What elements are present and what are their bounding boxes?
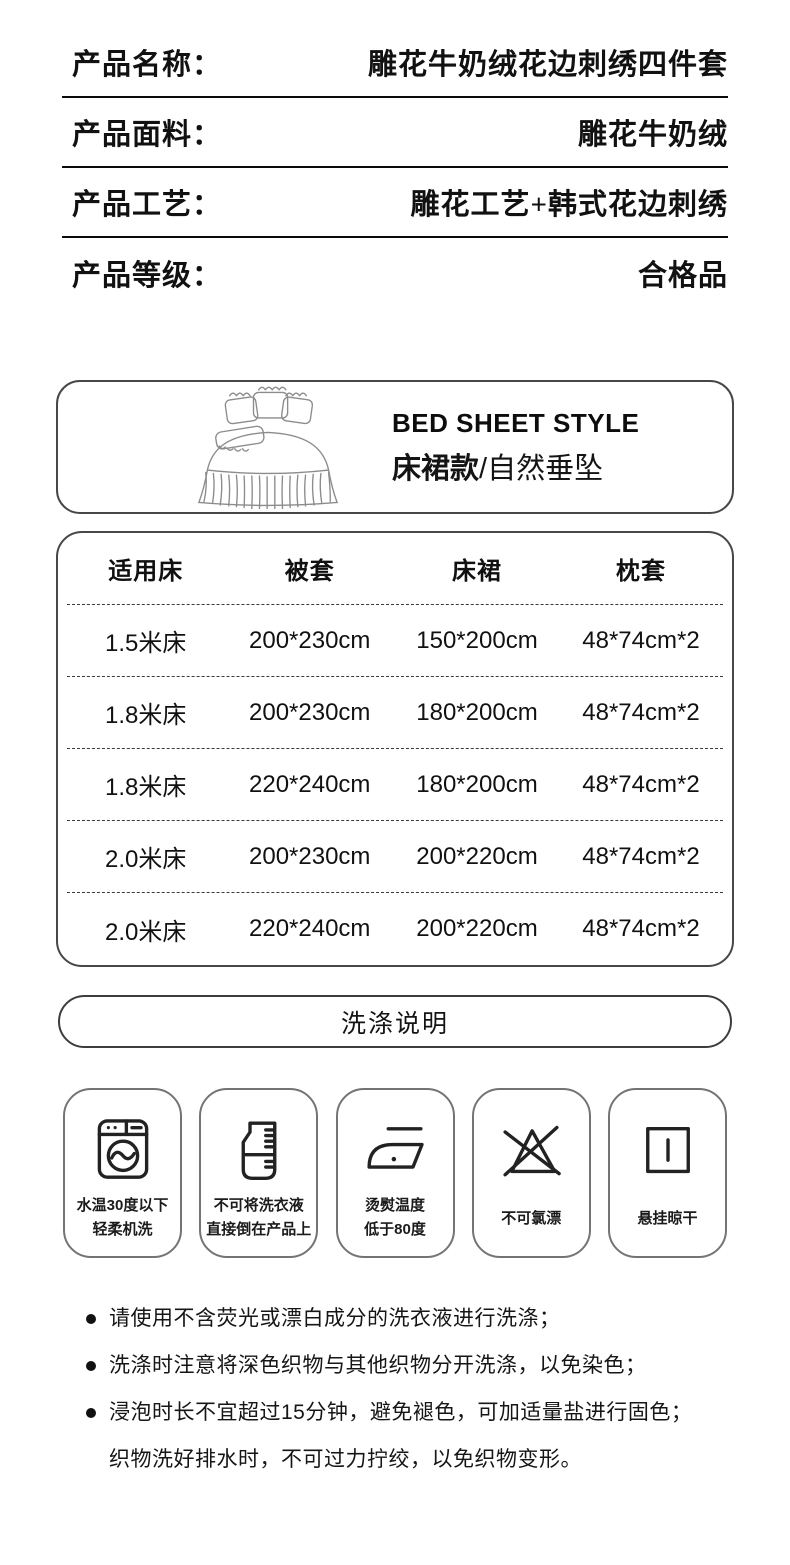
care-note-text: 织物洗好排水时，不可过力拧绞，以免织物变形。 — [109, 1445, 582, 1475]
style-subtitle: /自然垂坠 — [479, 453, 603, 485]
product-spec-sheet: 产品名称： 雕花牛奶绒花边刺绣四件套 产品面料： 雕花牛奶绒 产品工艺： 雕花工… — [0, 0, 790, 1565]
cell-duvet: 200*230cm — [224, 627, 395, 655]
spec-value: 合格品 — [638, 252, 728, 294]
cell-duvet: 200*230cm — [224, 699, 395, 727]
care-note-text: 浸泡时长不宜超过15分钟，避免褪色，可加适量盐进行固色； — [109, 1398, 692, 1428]
cell-pillow: 48*74cm*2 — [559, 771, 723, 799]
spec-label: 产品等级： — [62, 252, 222, 294]
cell-skirt: 180*200cm — [395, 699, 559, 727]
care-notes: 请使用不含荧光或漂白成分的洗衣液进行洗涤； 洗涤时注意将深色织物与其他织物分开洗… — [86, 1304, 730, 1475]
care-note-text: 请使用不含荧光或漂白成分的洗衣液进行洗涤； — [109, 1304, 561, 1334]
spec-row-fabric: 产品面料： 雕花牛奶绒 — [62, 98, 728, 168]
spec-row-craft: 产品工艺： 雕花工艺+韩式花边刺绣 — [62, 168, 728, 238]
cell-duvet: 220*240cm — [224, 771, 395, 799]
care-label-line: 烫熨温度 — [364, 1194, 426, 1218]
care-label-line: 轻柔机洗 — [77, 1218, 169, 1242]
bullet-dot — [86, 1314, 96, 1324]
spec-row-grade: 产品等级： 合格品 — [62, 238, 728, 308]
col-header-skirt: 床裙 — [395, 551, 559, 586]
cell-bed: 1.8米床 — [67, 695, 224, 730]
cell-bed: 2.0米床 — [67, 839, 224, 874]
care-label-line: 水温30度以下 — [77, 1194, 169, 1218]
care-label: 悬挂晾干 — [637, 1196, 697, 1256]
washing-machine-icon — [87, 1104, 159, 1194]
cell-skirt: 180*200cm — [395, 771, 559, 799]
detergent-beaker-icon — [223, 1104, 295, 1194]
care-note: 请使用不含荧光或漂白成分的洗衣液进行洗涤； — [86, 1304, 730, 1334]
care-box-no-bleach: 不可氯漂 — [472, 1088, 591, 1258]
cell-bed: 2.0米床 — [67, 912, 224, 947]
col-header-pillow: 枕套 — [559, 551, 723, 586]
style-name: 床裙款 — [392, 453, 479, 485]
hang-dry-icon — [632, 1104, 704, 1196]
cell-pillow: 48*74cm*2 — [559, 699, 723, 727]
wash-instructions-header: 洗涤说明 — [58, 995, 732, 1048]
table-row: 1.8米床 220*240cm 180*200cm 48*74cm*2 — [67, 749, 723, 821]
care-label: 烫熨温度 低于80度 — [364, 1194, 426, 1256]
size-table-header: 适用床 被套 床裙 枕套 — [67, 533, 723, 605]
spec-label: 产品面料： — [62, 111, 222, 153]
cell-skirt: 200*220cm — [395, 915, 559, 943]
spec-list: 产品名称： 雕花牛奶绒花边刺绣四件套 产品面料： 雕花牛奶绒 产品工艺： 雕花工… — [0, 0, 790, 308]
cell-pillow: 48*74cm*2 — [559, 915, 723, 943]
iron-icon — [359, 1104, 431, 1194]
style-banner-title-en: BED SHEET STYLE — [392, 408, 639, 439]
care-label-line: 低于80度 — [364, 1218, 426, 1242]
table-row: 1.5米床 200*230cm 150*200cm 48*74cm*2 — [67, 605, 723, 677]
care-label-line: 直接倒在产品上 — [206, 1218, 311, 1242]
care-label-line: 不可氯漂 — [501, 1207, 561, 1231]
care-label-line: 不可将洗衣液 — [206, 1194, 311, 1218]
spec-value: 雕花工艺+韩式花边刺绣 — [410, 181, 728, 223]
style-banner-text: BED SHEET STYLE 床裙款/自然垂坠 — [392, 408, 639, 487]
care-note-text: 洗涤时注意将深色织物与其他织物分开洗涤，以免染色； — [109, 1351, 647, 1381]
care-label: 水温30度以下 轻柔机洗 — [77, 1194, 169, 1256]
table-row: 2.0米床 220*240cm 200*220cm 48*74cm*2 — [67, 893, 723, 965]
style-banner-title-cn: 床裙款/自然垂坠 — [392, 445, 639, 487]
col-header-bed: 适用床 — [67, 551, 224, 586]
care-label-line: 悬挂晾干 — [637, 1207, 697, 1231]
table-row: 1.8米床 200*230cm 180*200cm 48*74cm*2 — [67, 677, 723, 749]
cell-bed: 1.8米床 — [67, 767, 224, 802]
size-table: 适用床 被套 床裙 枕套 1.5米床 200*230cm 150*200cm 4… — [56, 531, 734, 967]
bullet-dot — [86, 1361, 96, 1371]
care-box-iron-low: 烫熨温度 低于80度 — [336, 1088, 455, 1258]
care-box-machine-wash: 水温30度以下 轻柔机洗 — [63, 1088, 182, 1258]
wash-instructions-title: 洗涤说明 — [341, 1004, 449, 1040]
cell-skirt: 200*220cm — [395, 843, 559, 871]
care-icons-row: 水温30度以下 轻柔机洗 — [63, 1088, 727, 1258]
table-row: 2.0米床 200*230cm 200*220cm 48*74cm*2 — [67, 821, 723, 893]
care-label: 不可将洗衣液 直接倒在产品上 — [206, 1194, 311, 1256]
bullet-dot — [86, 1408, 96, 1418]
cell-duvet: 200*230cm — [224, 843, 395, 871]
cell-pillow: 48*74cm*2 — [559, 843, 723, 871]
cell-bed: 1.5米床 — [67, 623, 224, 658]
cell-pillow: 48*74cm*2 — [559, 627, 723, 655]
care-label: 不可氯漂 — [501, 1196, 561, 1256]
no-bleach-icon — [495, 1104, 567, 1196]
spec-label: 产品名称： — [62, 41, 222, 83]
style-banner: BED SHEET STYLE 床裙款/自然垂坠 — [56, 380, 734, 514]
care-box-no-pour-detergent: 不可将洗衣液 直接倒在产品上 — [199, 1088, 318, 1258]
care-box-hang-dry: 悬挂晾干 — [608, 1088, 727, 1258]
bed-illustration — [170, 383, 366, 511]
col-header-duvet: 被套 — [224, 551, 395, 586]
cell-duvet: 220*240cm — [224, 915, 395, 943]
care-note: 洗涤时注意将深色织物与其他织物分开洗涤，以免染色； — [86, 1351, 730, 1381]
care-note: 浸泡时长不宜超过15分钟，避免褪色，可加适量盐进行固色； — [86, 1398, 730, 1428]
care-note-continuation: 织物洗好排水时，不可过力拧绞，以免织物变形。 — [86, 1445, 730, 1475]
spec-value: 雕花牛奶绒花边刺绣四件套 — [368, 41, 728, 83]
cell-skirt: 150*200cm — [395, 627, 559, 655]
spec-label: 产品工艺： — [62, 181, 222, 223]
spec-row-product-name: 产品名称： 雕花牛奶绒花边刺绣四件套 — [62, 28, 728, 98]
spec-value: 雕花牛奶绒 — [578, 111, 728, 153]
